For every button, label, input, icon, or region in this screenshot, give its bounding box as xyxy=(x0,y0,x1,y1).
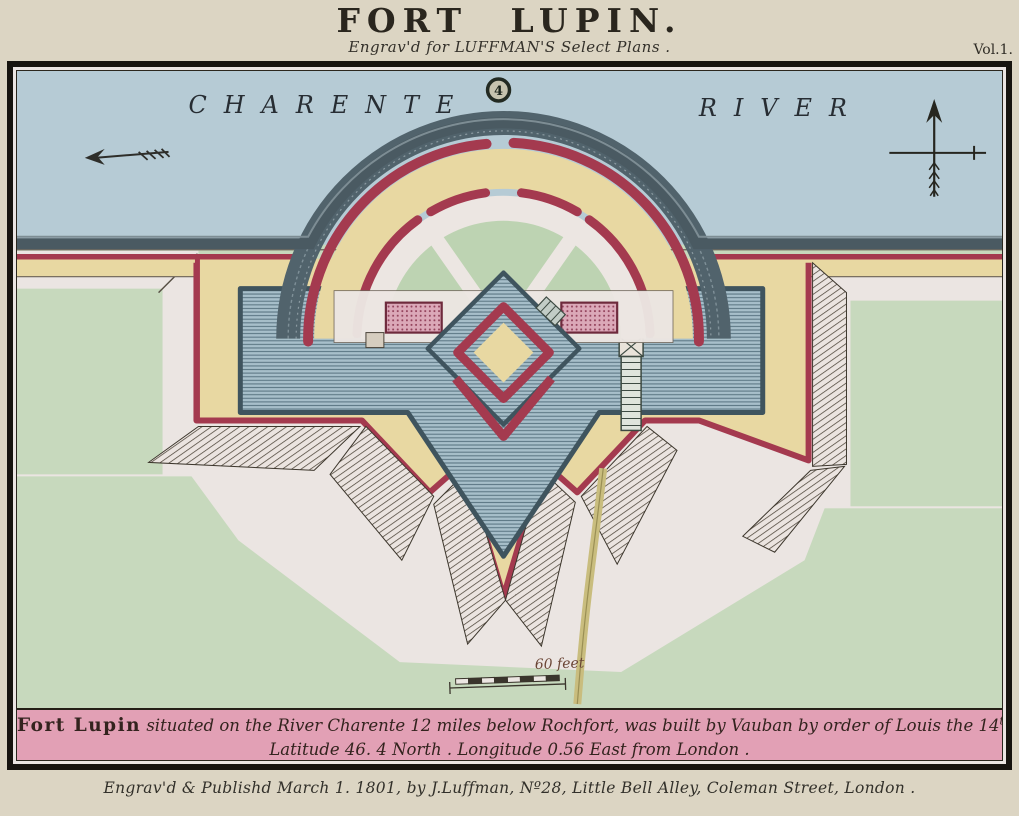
river-label-left: CHARENTE xyxy=(188,91,470,119)
moat-steps-block xyxy=(366,333,384,348)
map-inner-border: CHARENTE RIVER 4 xyxy=(16,70,1003,761)
plate-number-badge: 4 xyxy=(488,79,510,101)
page-title: FORT LUPIN. xyxy=(0,1,1019,40)
plate-number: 4 xyxy=(494,84,503,99)
publisher-imprint: Engrav'd & Publishd March 1. 1801, by J.… xyxy=(0,779,1019,797)
map-frame: CHARENTE RIVER 4 xyxy=(7,61,1012,770)
caption-band: Fort Lupin situated on the River Charent… xyxy=(17,708,1002,760)
fort-plan-map: CHARENTE RIVER 4 xyxy=(17,71,1002,708)
caption-fort-name: Fort Lupin xyxy=(17,715,141,736)
scale-label: 60 feet xyxy=(535,655,585,673)
moat-stair-bridge xyxy=(619,337,643,431)
river-label-right: RIVER xyxy=(698,94,864,122)
page-subtitle: Engrav'd for LUFFMAN'S Select Plans . xyxy=(0,38,1019,56)
caption-line1: Fort Lupin situated on the River Charent… xyxy=(17,713,1002,739)
engraved-map-page: FORT LUPIN. Engrav'd for LUFFMAN'S Selec… xyxy=(0,0,1019,816)
volume-label: Vol.1. xyxy=(973,42,1013,58)
caption-line2: Latitude 46. 4 North . Longitude 0.56 Ea… xyxy=(17,739,1002,761)
